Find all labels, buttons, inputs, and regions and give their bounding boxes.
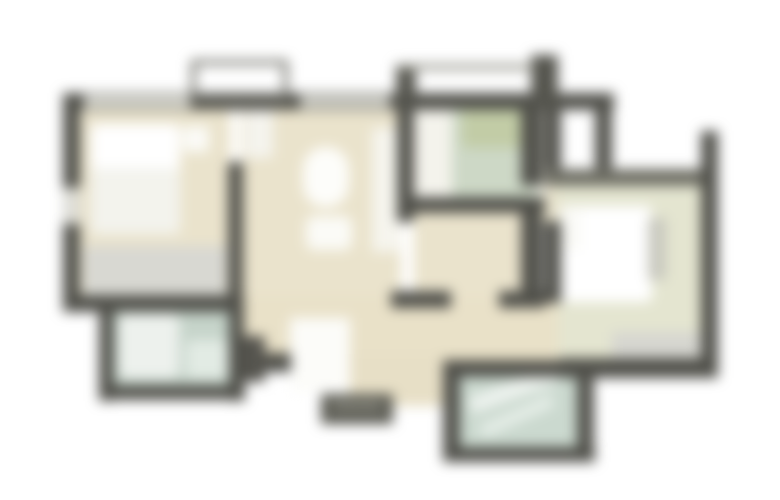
living-table bbox=[303, 147, 349, 207]
mid-right-wall-lower bbox=[521, 211, 542, 294]
bottom-bath-top-wall bbox=[443, 360, 595, 377]
entry-porch-step-light bbox=[332, 402, 382, 410]
living-door-swing-white bbox=[245, 106, 273, 158]
right-bedroom-left-wall bbox=[544, 221, 561, 303]
right-bedroom-top-wall bbox=[544, 169, 705, 186]
left-wall-window bbox=[63, 188, 80, 224]
left-bathroom-sink bbox=[186, 340, 228, 378]
bottom-bath-bottom-wall bbox=[443, 447, 595, 462]
left-bath-bottom-wall bbox=[99, 385, 245, 400]
right-bed-pillow bbox=[561, 210, 581, 250]
kitchen-counter-strip bbox=[372, 128, 400, 252]
bedroom-living-divider bbox=[228, 162, 243, 312]
left-wardrobe bbox=[84, 246, 226, 296]
corridor-floor bbox=[414, 212, 526, 298]
mid-left-wall-stub bbox=[391, 291, 451, 308]
top-window-left bbox=[84, 95, 190, 108]
floor-plan-image bbox=[0, 0, 780, 500]
right-outer-wall bbox=[701, 131, 718, 372]
balcony2-right-post bbox=[531, 55, 558, 108]
corridor-right-stub bbox=[499, 291, 545, 308]
floor-plan bbox=[0, 0, 780, 500]
left-bathtub bbox=[119, 314, 179, 378]
left-bedroom-bottom-wall bbox=[63, 295, 244, 312]
right-bedside-unit bbox=[648, 218, 666, 280]
balcony2-rail bbox=[398, 64, 534, 70]
entry-door-white bbox=[290, 318, 350, 392]
right-wardrobe bbox=[612, 332, 704, 360]
mid-left-wall-upper bbox=[397, 104, 414, 222]
left-bed-blanket bbox=[91, 168, 180, 234]
left-nightstand bbox=[183, 126, 209, 152]
top-window-mid bbox=[300, 95, 390, 108]
balcony2-left-post bbox=[396, 64, 416, 108]
balcony-outline bbox=[191, 60, 288, 102]
living-chair-group bbox=[306, 216, 352, 250]
left-bath-right-wall bbox=[229, 303, 244, 401]
